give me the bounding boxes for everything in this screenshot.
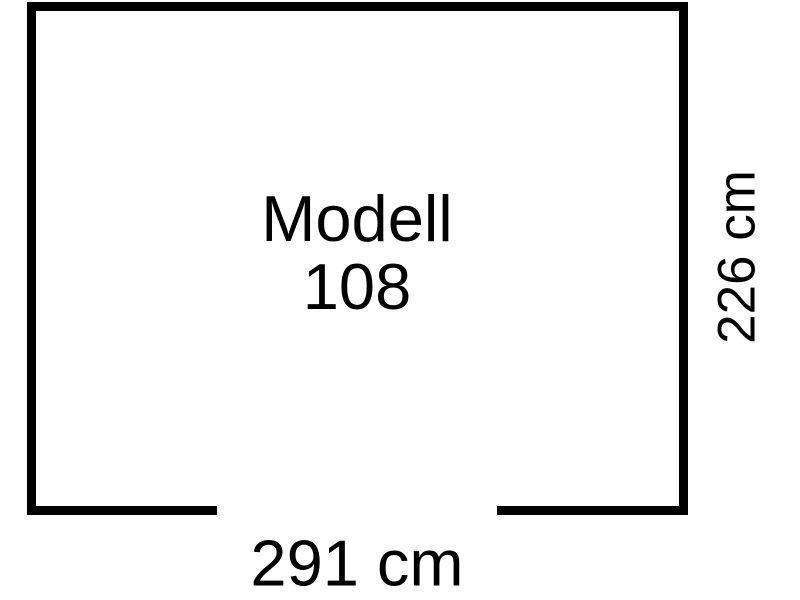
floorplan-canvas: Modell 108 291 cm 226 cm [0, 0, 800, 600]
bottom-wall-left-segment [27, 506, 217, 515]
depth-dimension-label: 226 cm [711, 170, 764, 344]
bottom-wall-right-segment [497, 506, 688, 515]
model-name-line: Modell [261, 185, 452, 253]
width-dimension-label: 291 cm [250, 531, 463, 596]
model-label: Modell 108 [261, 185, 452, 322]
model-number-line: 108 [261, 253, 452, 321]
